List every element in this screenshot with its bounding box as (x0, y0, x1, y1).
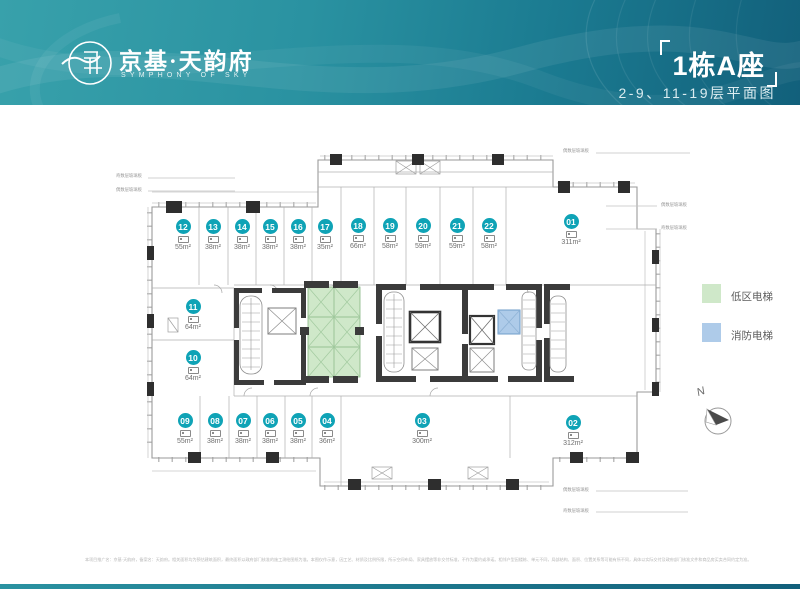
unit-number: 18 (351, 218, 366, 233)
bed-icon (452, 235, 463, 242)
unit-marker: 01311m² (548, 214, 594, 246)
bed-icon (568, 432, 579, 439)
unit-marker: 2258m² (466, 218, 512, 250)
unit-area: 311m² (561, 239, 580, 246)
unit-number: 22 (482, 218, 497, 233)
facade-annotation: 偶数层玻璃板 (116, 186, 142, 192)
unit-area: 35m² (317, 244, 333, 251)
bed-icon (188, 316, 199, 323)
bed-icon (353, 235, 364, 242)
unit-number: 04 (320, 413, 335, 428)
unit-area: 300m² (412, 438, 432, 445)
bed-icon (566, 231, 577, 238)
disclaimer-text: 本项目推广名：京基·天韵府，备案名：天韵府。相关面积均为预估建筑面积，最终面积以… (85, 556, 751, 562)
page-title: 1栋A座 (660, 40, 777, 87)
legend-label-fire-elevator: 消防电梯 (731, 328, 773, 343)
unit-area: 64m² (185, 375, 201, 382)
unit-number: 10 (186, 350, 201, 365)
facade-annotation: 偶数层玻璃板 (563, 147, 589, 153)
bed-icon (180, 430, 191, 437)
bed-icon (484, 235, 495, 242)
unit-number: 11 (186, 299, 201, 314)
bed-icon (293, 430, 304, 437)
facade-annotation: 奇数层玻璃板 (563, 507, 589, 513)
facade-annotation: 偶数层玻璃板 (661, 201, 687, 207)
unit-marker: 1164m² (170, 299, 216, 331)
legend-swatch-fire-elevator (702, 323, 721, 342)
facade-annotation: 偶数层玻璃板 (563, 486, 589, 492)
facade-annotation: 奇数层玻璃板 (661, 224, 687, 230)
bed-icon (417, 430, 428, 437)
unit-area: 55m² (177, 438, 193, 445)
bed-icon (418, 235, 429, 242)
legend-swatch-low-zone-elevator (702, 284, 721, 303)
unit-number: 09 (178, 413, 193, 428)
unit-area: 58m² (481, 243, 497, 250)
unit-number: 03 (415, 413, 430, 428)
unit-area: 58m² (382, 243, 398, 250)
unit-number: 01 (564, 214, 579, 229)
unit-area: 312m² (563, 440, 583, 447)
unit-marker: 1064m² (170, 350, 216, 382)
bed-icon (320, 236, 331, 243)
brand-name: 京基·天韵府 (119, 42, 254, 76)
unit-number: 12 (176, 219, 191, 234)
brand-tagline: SYMPHONY OF SKY (121, 72, 252, 79)
bed-icon (322, 430, 333, 437)
header-banner: 京基·天韵府 SYMPHONY OF SKY 1栋A座 2-9、11-19层平面… (0, 0, 800, 105)
unit-area: 66m² (350, 243, 366, 250)
unit-number: 02 (566, 415, 581, 430)
bed-icon (178, 236, 189, 243)
brand-logo-icon (60, 38, 114, 88)
unit-area: 59m² (415, 243, 431, 250)
bed-icon (265, 430, 276, 437)
unit-number: 17 (318, 219, 333, 234)
unit-marker: 0436m² (304, 413, 350, 445)
unit-area: 55m² (175, 244, 191, 251)
unit-marker: 02312m² (550, 415, 596, 447)
compass-north-label: N (695, 385, 707, 399)
bed-icon (188, 367, 199, 374)
bed-icon (237, 236, 248, 243)
bed-icon (208, 236, 219, 243)
bed-icon (210, 430, 221, 437)
compass-icon (700, 403, 740, 443)
unit-marker: 03300m² (399, 413, 445, 445)
unit-area: 64m² (185, 324, 201, 331)
page-subtitle: 2-9、11-19层平面图 (618, 83, 776, 103)
bottom-teal-band (0, 584, 800, 589)
unit-area: 59m² (449, 243, 465, 250)
unit-number: 21 (450, 218, 465, 233)
unit-number: 19 (383, 218, 398, 233)
bed-icon (265, 236, 276, 243)
bed-icon (385, 235, 396, 242)
legend-label-low-zone-elevator: 低区电梯 (731, 289, 773, 304)
unit-area: 36m² (319, 438, 335, 445)
unit-number: 20 (416, 218, 431, 233)
facade-annotation: 奇数层玻璃板 (116, 172, 142, 178)
